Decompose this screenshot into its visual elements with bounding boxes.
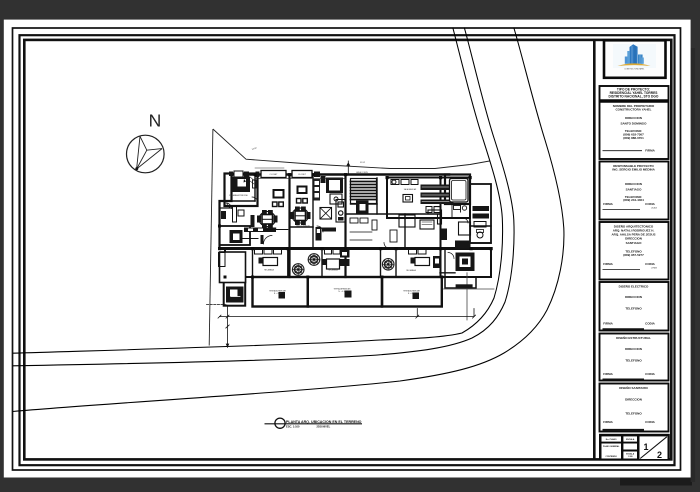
svg-text:PLANTA ARQ. UBICACION EN EL TE: PLANTA ARQ. UBICACION EN EL TERRENO [286,420,362,424]
svg-text:2DO NIVEL: 2DO NIVEL [317,425,331,429]
svg-text:(809) 957-5277: (809) 957-5277 [623,253,644,257]
svg-text:DIRECCION: DIRECCION [625,398,642,402]
svg-text:CONTENIDO: CONTENIDO [606,456,618,458]
svg-text:(809) 244-4464: (809) 244-4464 [623,198,644,202]
svg-text:DISTRITO NACIONAL, STO DGO: DISTRITO NACIONAL, STO DGO [609,95,659,99]
svg-text:FIRMA: FIRMA [603,262,613,266]
svg-text:PLANO GENERAL: PLANO GENERAL [603,445,620,448]
svg-text:No. PLANO: No. PLANO [606,438,617,441]
svg-text:DIRECCION: DIRECCION [625,116,642,120]
svg-text:DIRECCION: DIRECCION [625,295,642,299]
svg-text:CONSTRUCTORA YAHEL: CONSTRUCTORA YAHEL [615,108,651,112]
svg-text:CLOSET: CLOSET [269,174,278,176]
svg-text:ESCALA: ESCALA [626,453,634,456]
svg-text:FIRMA: FIRMA [645,149,655,153]
svg-text:SALA COMEDOR: SALA COMEDOR [296,225,310,228]
svg-text:CODIA: CODIA [645,202,656,206]
svg-text:DISEÑO ELECTRICO: DISEÑO ELECTRICO [619,284,649,289]
svg-text:DIRECCION: DIRECCION [625,182,642,186]
svg-text:N. + 0.15: N. + 0.15 [338,291,345,293]
svg-text:DISEÑO SANITARIO: DISEÑO SANITARIO [619,385,648,390]
svg-text:ESC. 1:100: ESC. 1:100 [286,425,300,429]
svg-text:TELEFONO: TELEFONO [625,412,642,416]
svg-text:SALA FAMILIAR: SALA FAMILIAR [404,188,417,191]
svg-text:27583: 27583 [651,267,657,269]
svg-text:RECAMARA: RECAMARA [328,269,338,272]
svg-text:FIRMA: FIRMA [603,420,613,424]
svg-text:FIRMA: FIRMA [603,372,613,376]
svg-text:AREA COMUN: AREA COMUN [356,171,368,174]
svg-text:SANTIAGO: SANTIAGO [626,241,643,245]
svg-text:DISEÑO ESTRUCTURAL: DISEÑO ESTRUCTURAL [616,335,651,340]
svg-text:TELEFONO: TELEFONO [625,359,642,363]
svg-text:1:100: 1:100 [628,456,633,458]
svg-text:SANTIAGO: SANTIAGO [626,187,643,191]
svg-text:(809) 888-0701: (809) 888-0701 [623,136,644,140]
svg-text:21453: 21453 [651,208,657,210]
svg-text:CODIA: CODIA [645,420,656,424]
svg-text:DIRECCION: DIRECCION [625,347,642,351]
svg-text:N. + 0.15: N. + 0.15 [408,293,415,295]
svg-text:N. + 0.15: N. + 0.15 [274,293,281,295]
svg-text:N: N [149,111,162,131]
svg-text:TELEFONO: TELEFONO [625,307,642,311]
svg-text:RECAMARA: RECAMARA [406,269,416,272]
svg-text:CODIA: CODIA [645,262,656,266]
svg-text:CONSTRUCTORA YAHEL: CONSTRUCTORA YAHEL [624,67,644,70]
svg-text:CODIA: CODIA [645,321,656,325]
svg-text:RECAMARA PRINCIPAL: RECAMARA PRINCIPAL [229,194,248,197]
svg-text:FIRMA: FIRMA [603,321,613,325]
svg-text:ING. SERGIO EMILIO MEDINA: ING. SERGIO EMILIO MEDINA [612,168,655,172]
svg-text:2: 2 [657,450,662,460]
svg-text:SANTO DOMINGO: SANTO DOMINGO [621,121,648,125]
svg-text:CLOSET: CLOSET [298,174,307,176]
svg-text:ARQ. AHILSA PEÑA DE JESUS: ARQ. AHILSA PEÑA DE JESUS [611,231,655,236]
svg-text:RECAMARA: RECAMARA [264,269,274,272]
svg-text:CODIA: CODIA [645,372,656,376]
svg-text:1: 1 [643,442,648,452]
svg-text:ESCALA: ESCALA [626,438,635,441]
svg-text:FIRMA: FIRMA [603,202,613,206]
